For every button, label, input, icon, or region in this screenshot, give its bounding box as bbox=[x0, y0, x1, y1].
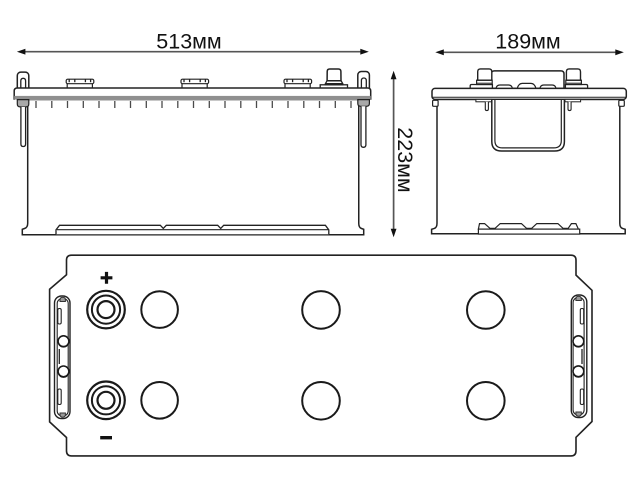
svg-text:513мм: 513мм bbox=[156, 30, 221, 54]
svg-text:223мм: 223мм bbox=[393, 127, 417, 192]
svg-text:189мм: 189мм bbox=[495, 30, 560, 54]
